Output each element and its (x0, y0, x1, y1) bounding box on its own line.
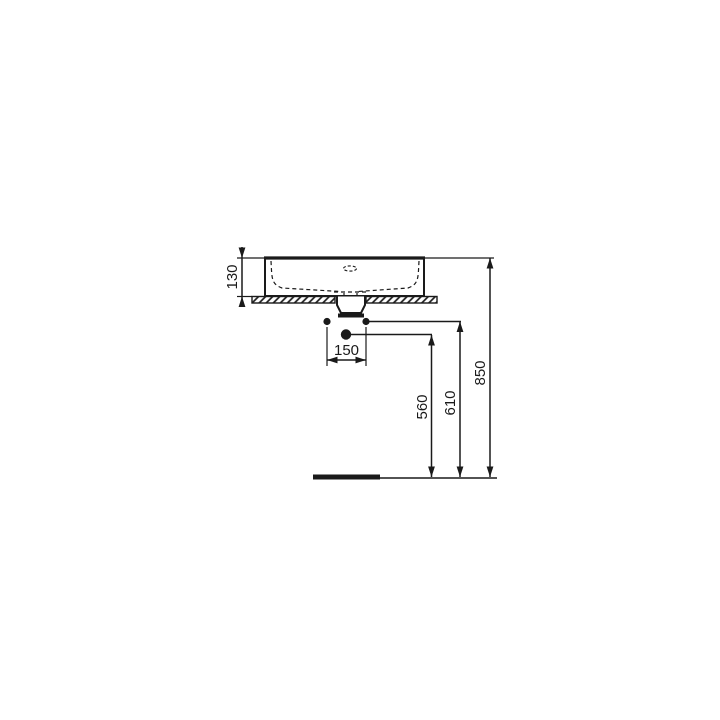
arrow-down-icon (428, 467, 435, 478)
arrow-up-icon (487, 258, 494, 269)
arrow-down-icon (239, 248, 246, 259)
fixing-hole-left (323, 318, 330, 325)
arrow-up-icon (457, 322, 464, 333)
arrow-up-icon (239, 297, 246, 308)
arrow-down-icon (457, 467, 464, 478)
dim-label-560: 560 (414, 394, 431, 419)
dim-label-610: 610 (442, 390, 459, 415)
basin-outline (264, 258, 425, 297)
countertop-hatch-left (252, 297, 335, 304)
floor-line (313, 477, 497, 478)
dimension-rim-height: 850 (424, 258, 494, 477)
fixing-hole-right (362, 318, 369, 325)
drain-body (337, 297, 365, 316)
dim-label-850: 850 (472, 360, 489, 385)
arrow-down-icon (487, 467, 494, 478)
arrow-up-icon (428, 335, 435, 346)
countertop-hatch-right (366, 297, 437, 304)
drawing-canvas: 130 150 560 610 850 (0, 0, 720, 720)
dim-label-150: 150 (334, 342, 359, 359)
dimension-siphon-height: 560 (414, 335, 435, 477)
washbasin-dimension-drawing: 130 150 560 610 850 (0, 0, 720, 720)
siphon-outlet-hole (341, 329, 351, 339)
dimension-fixing-holes-height: 610 (442, 322, 463, 478)
dim-label-130: 130 (224, 264, 241, 289)
